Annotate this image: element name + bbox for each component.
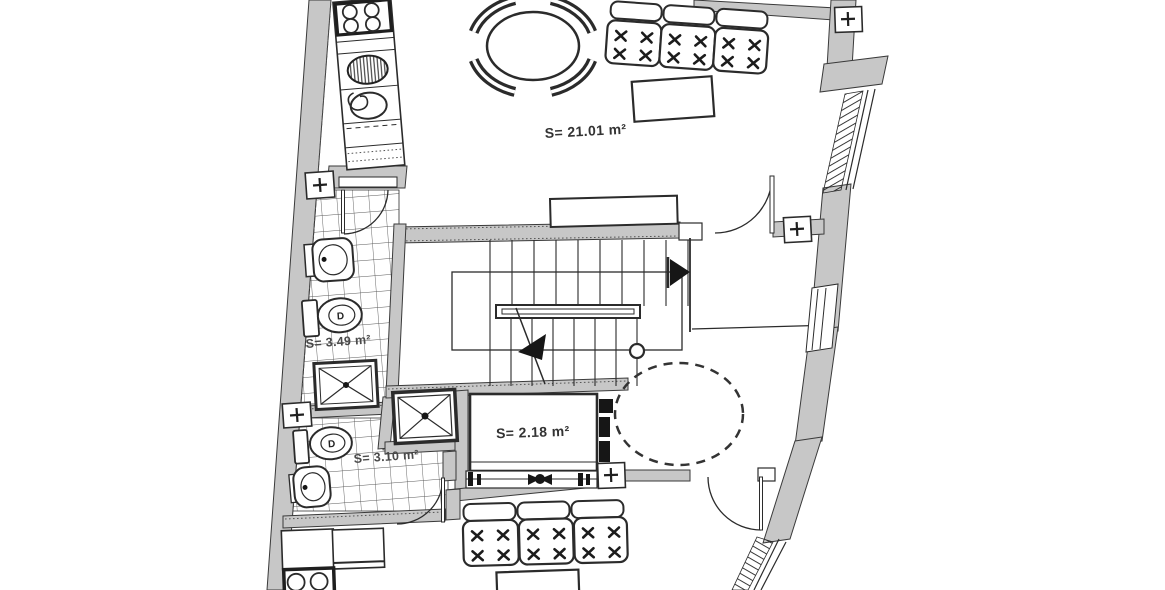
- floor-plan-page: D D: [0, 0, 1165, 590]
- newel-post: [630, 344, 644, 358]
- kitchen-counter-lower: [281, 527, 386, 590]
- coffee-table-icon: [496, 570, 579, 590]
- survey-marker-icon: [598, 463, 626, 489]
- dining-set: [474, 0, 593, 92]
- shower-tray-icon: [314, 360, 378, 409]
- sofa-icon: [605, 1, 770, 74]
- floor-plan-drawing: D D: [0, 0, 1165, 590]
- kitchen-counter: [333, 0, 405, 170]
- stairs-icon: [452, 238, 690, 386]
- door-swing-icon: [708, 477, 763, 530]
- toilet-mark: D: [328, 439, 336, 450]
- elevator-rail: [599, 399, 613, 462]
- room-label-living: S= 21.01 m²: [544, 121, 627, 141]
- window-icon: [823, 89, 875, 193]
- turning-circle-icon: [615, 363, 743, 465]
- elevator: [466, 394, 613, 488]
- washbasin-icon: [304, 237, 355, 282]
- survey-marker-icon: [783, 216, 811, 242]
- cooktop-icon: [335, 0, 391, 35]
- toilet-mark: D: [337, 311, 345, 322]
- shower-tray-icon: [393, 389, 458, 443]
- wall-bath-lower-bottom: [283, 509, 445, 528]
- console-table: [550, 196, 678, 227]
- sofa-icon: [462, 500, 628, 566]
- survey-marker-icon: [305, 171, 335, 199]
- cooktop-icon: [284, 568, 335, 590]
- door-swing-icon: [715, 176, 774, 233]
- door-jamb: [679, 223, 702, 240]
- dining-table-icon: [487, 12, 579, 80]
- survey-marker-icon: [282, 402, 312, 428]
- washbasin-icon: [288, 465, 331, 508]
- coffee-table-icon: [632, 76, 715, 121]
- wall-right-lower: [763, 437, 822, 543]
- windows: [732, 89, 875, 590]
- room-label-elevator: S= 2.18 m²: [496, 423, 570, 442]
- elevator-door-mechanism: [466, 471, 597, 488]
- window-icon: [732, 537, 786, 590]
- survey-marker-icon: [835, 7, 863, 33]
